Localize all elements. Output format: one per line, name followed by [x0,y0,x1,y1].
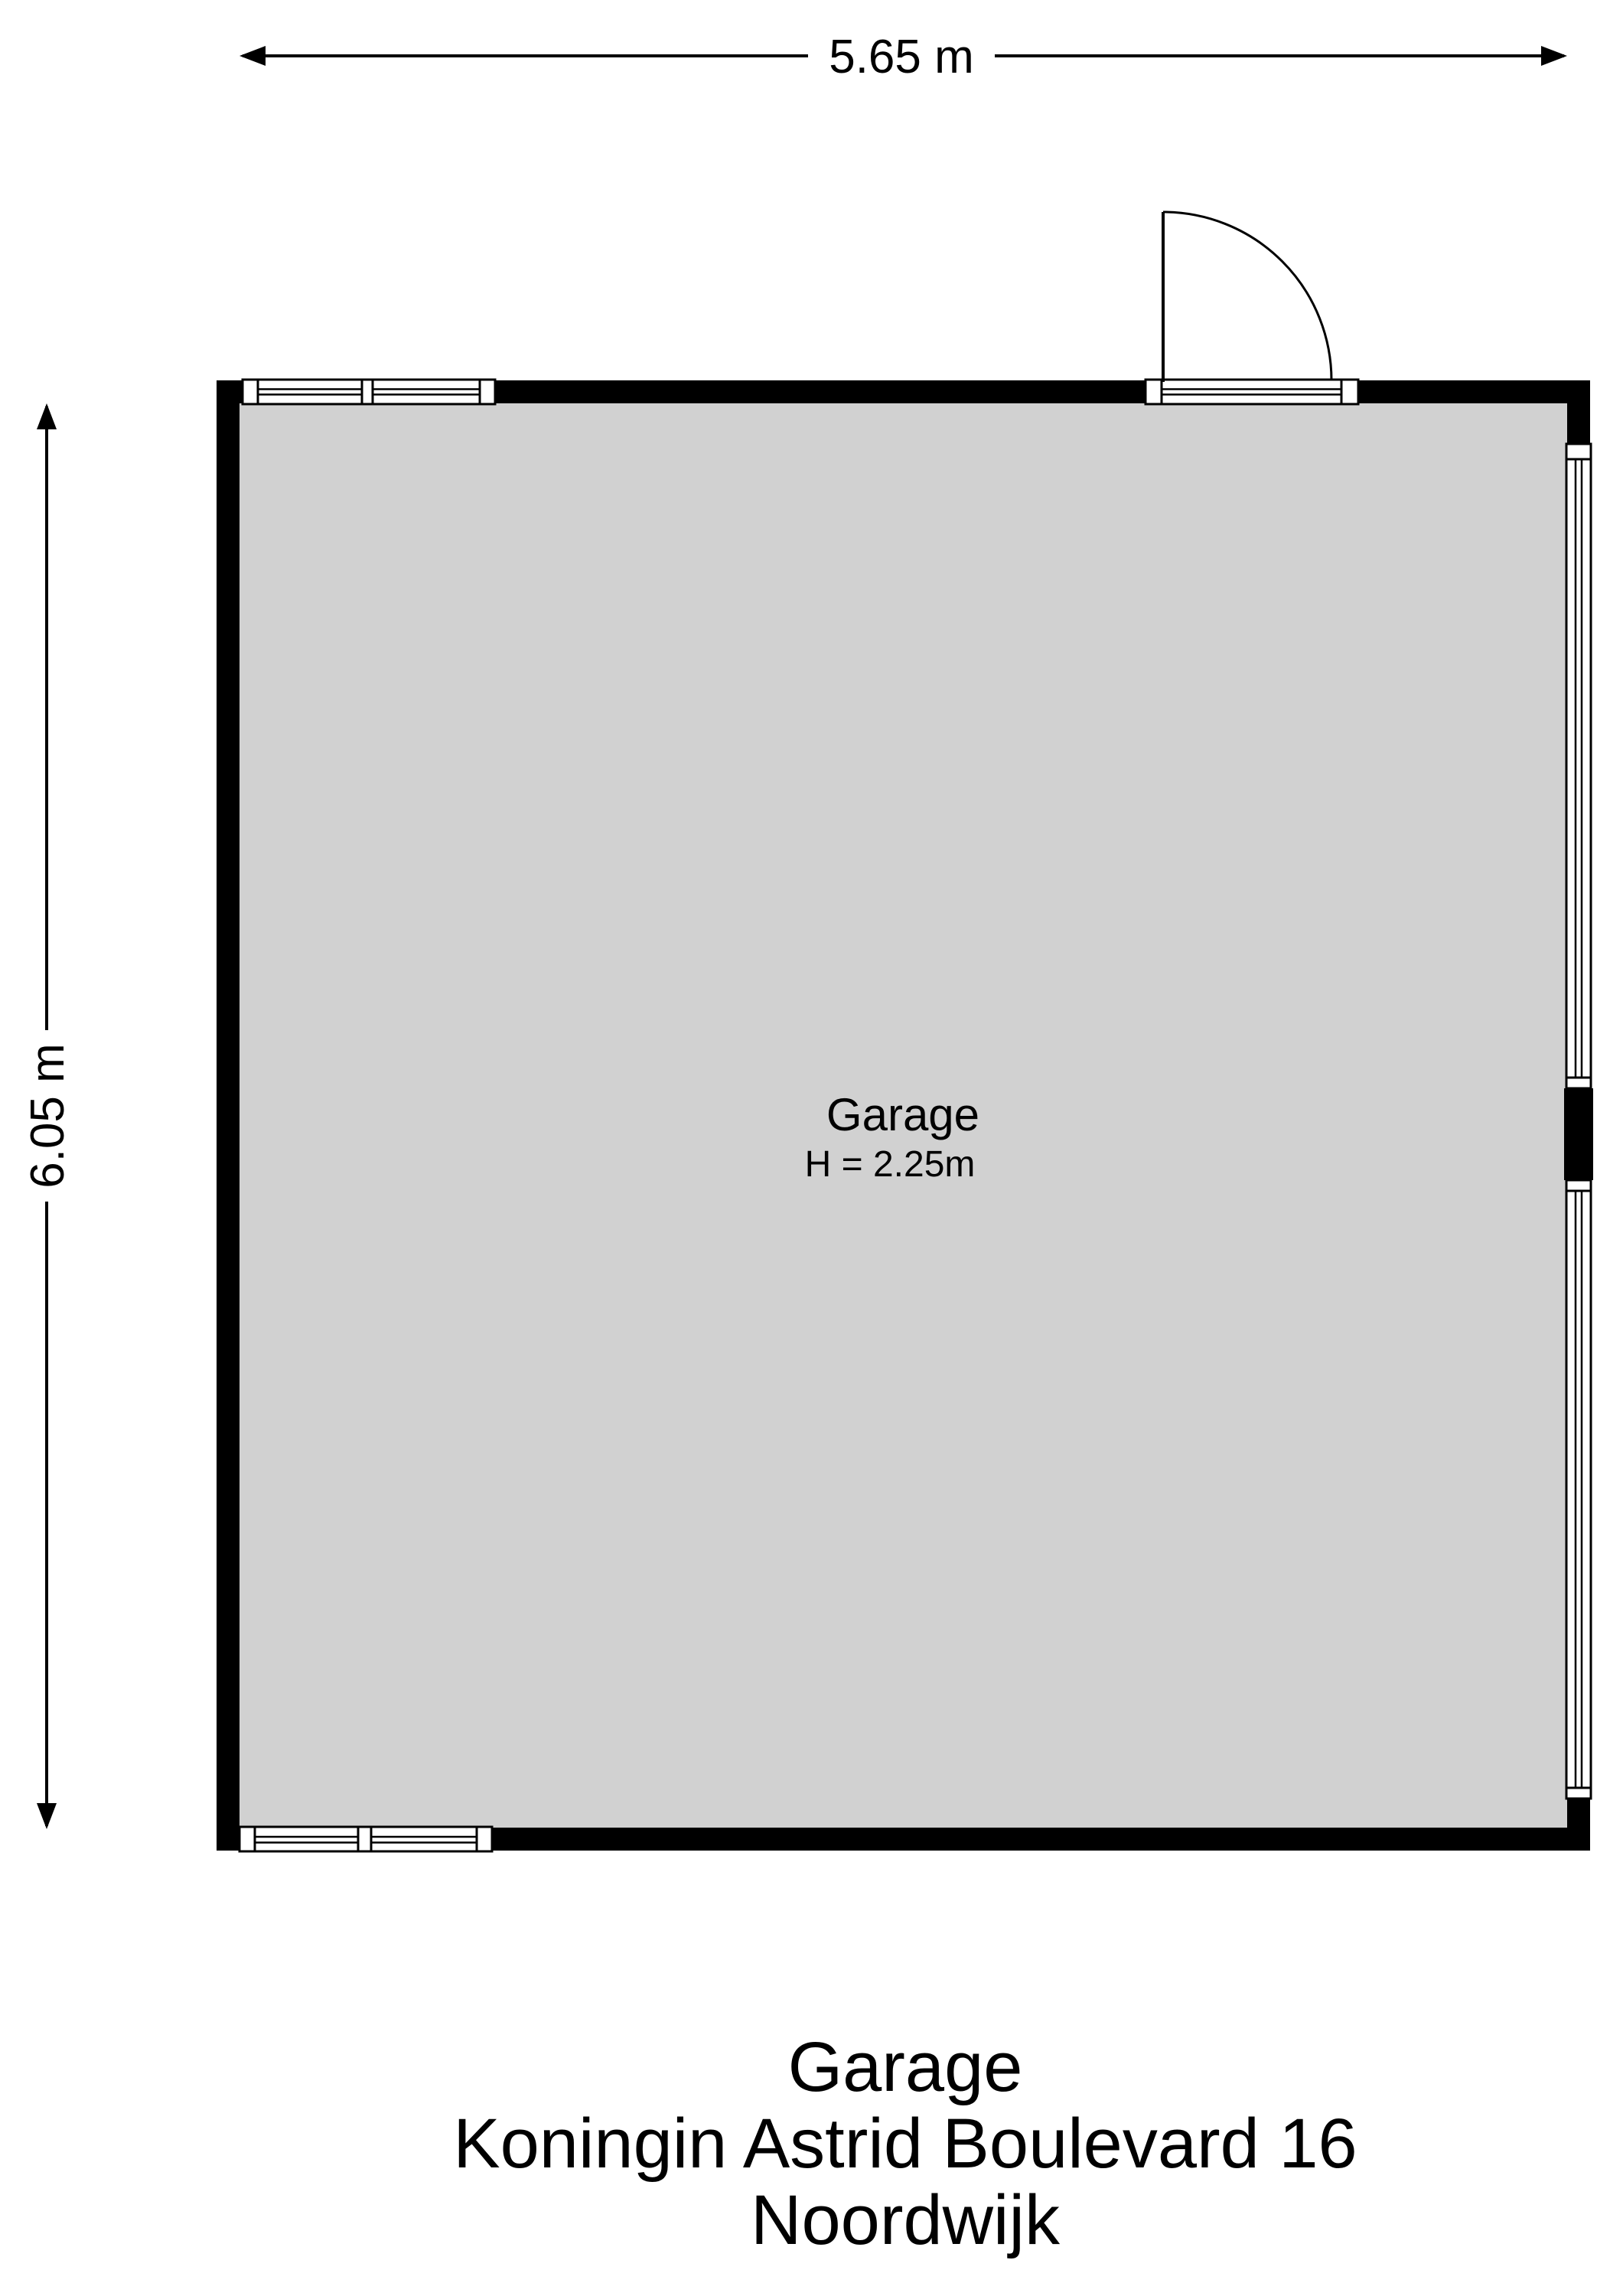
window-bottom-left [240,1827,492,1851]
window-frame [1566,1180,1591,1799]
arrowhead-up-icon [37,403,57,429]
window-frame [1566,444,1591,1088]
floorplan: Garage H = 2.25m [217,212,1593,1851]
footer-city: Noordwijk [751,2181,1061,2259]
door-top-right [1146,212,1358,404]
wall-left [217,380,240,1851]
window-right-lower [1566,1180,1591,1799]
footer-title-block: Garage Koningin Astrid Boulevard 16 Noor… [453,2028,1357,2259]
window-frame [240,1827,492,1851]
footer-title: Garage [788,2028,1023,2106]
door-swing-arc [1163,212,1331,380]
window-right-upper [1566,444,1591,1088]
dimension-width: 5.65 m [240,31,1567,83]
dimension-height: 6.05 m [21,403,74,1829]
floorplan-canvas: 5.65 m 6.05 m [0,0,1623,2296]
arrowhead-left-icon [240,46,266,66]
door-threshold [1146,380,1358,404]
footer-address: Koningin Astrid Boulevard 16 [453,2105,1357,2183]
dimension-width-label: 5.65 m [829,31,974,83]
window-frame [243,380,495,404]
arrowhead-down-icon [37,1803,57,1829]
arrowhead-right-icon [1541,46,1567,66]
dimension-height-label: 6.05 m [21,1043,74,1189]
window-top-left [243,380,495,404]
room-height-label: H = 2.25m [805,1144,976,1185]
room-label: Garage [826,1089,979,1140]
wall-pier-right [1564,1088,1593,1180]
